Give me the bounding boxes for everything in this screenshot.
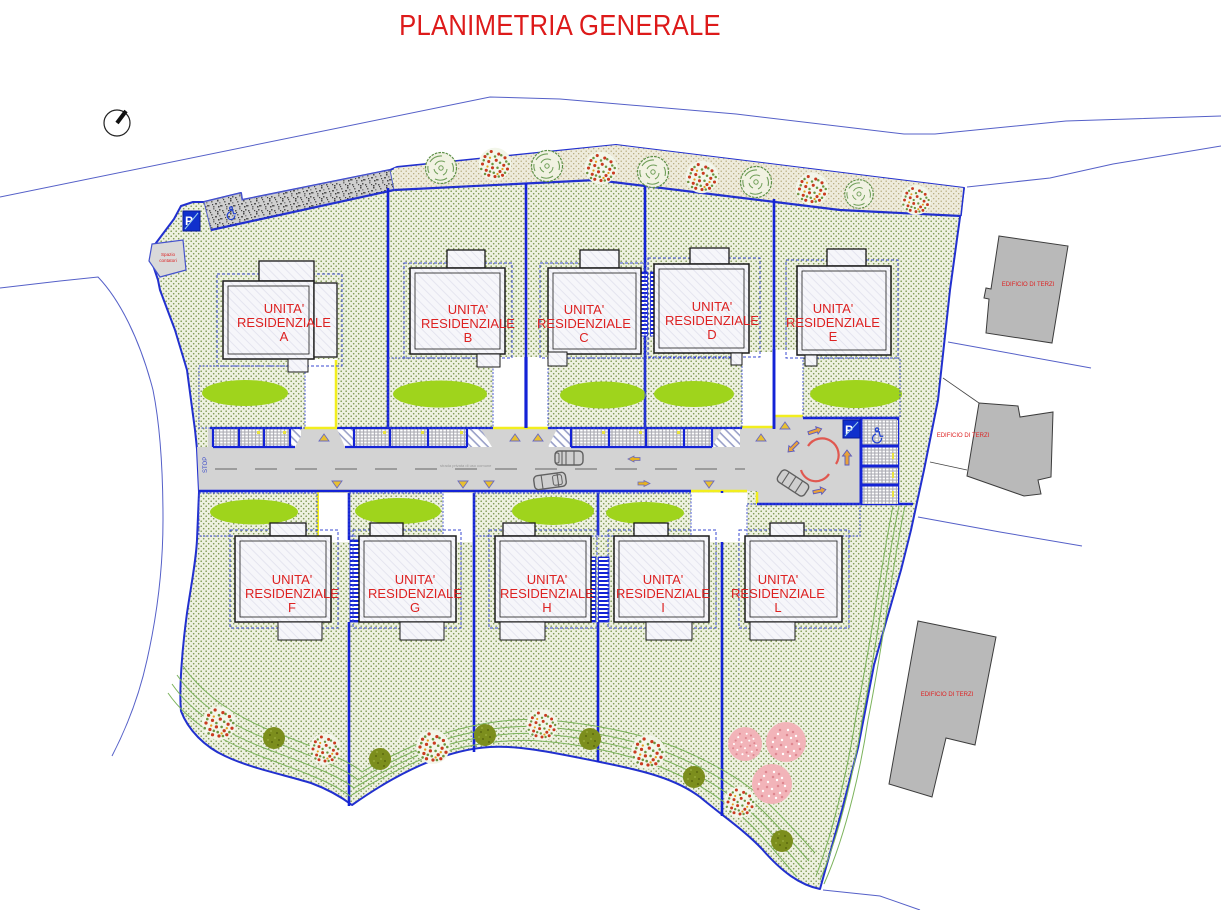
svg-text:UNITA': UNITA' <box>395 572 436 587</box>
svg-text:RESIDENZIALE: RESIDENZIALE <box>665 313 759 328</box>
svg-text:RESIDENZIALE: RESIDENZIALE <box>368 586 462 601</box>
svg-text:RESIDENZIALE: RESIDENZIALE <box>500 586 594 601</box>
svg-text:PLANIMETRIA GENERALE: PLANIMETRIA GENERALE <box>399 9 721 42</box>
svg-text:G: G <box>410 600 420 615</box>
svg-text:D: D <box>707 327 716 342</box>
svg-text:EDIFICIO DI TERZI: EDIFICIO DI TERZI <box>937 433 990 439</box>
svg-text:RESIDENZIALE: RESIDENZIALE <box>237 315 331 330</box>
svg-text:contatori: contatori <box>159 258 177 263</box>
svg-text:UNITA': UNITA' <box>692 299 733 314</box>
svg-text:RESIDENZIALE: RESIDENZIALE <box>245 586 339 601</box>
svg-text:L: L <box>774 600 781 615</box>
svg-text:B: B <box>464 330 473 345</box>
svg-text:EDIFICIO DI TERZI: EDIFICIO DI TERZI <box>1002 282 1055 288</box>
svg-text:UNITA': UNITA' <box>527 572 568 587</box>
svg-text:F: F <box>288 600 296 615</box>
svg-text:RESIDENZIALE: RESIDENZIALE <box>786 315 880 330</box>
svg-text:RESIDENZIALE: RESIDENZIALE <box>731 586 825 601</box>
svg-text:UNITA': UNITA' <box>272 572 313 587</box>
svg-text:EDIFICIO DI TERZI: EDIFICIO DI TERZI <box>921 692 974 698</box>
svg-text:STOP: STOP <box>203 457 209 473</box>
svg-text:A: A <box>280 329 289 344</box>
svg-text:RESIDENZIALE: RESIDENZIALE <box>421 316 515 331</box>
svg-text:UNITA': UNITA' <box>643 572 684 587</box>
svg-text:RESIDENZIALE: RESIDENZIALE <box>537 316 631 331</box>
svg-text:UNITA': UNITA' <box>813 301 854 316</box>
svg-text:E: E <box>829 329 838 344</box>
svg-text:UNITA': UNITA' <box>758 572 799 587</box>
svg-text:Spazio: Spazio <box>161 252 175 257</box>
svg-text:RESIDENZIALE: RESIDENZIALE <box>616 586 710 601</box>
svg-text:C: C <box>579 330 588 345</box>
svg-text:I: I <box>661 600 665 615</box>
svg-text:UNITA': UNITA' <box>264 301 305 316</box>
svg-text:UNITA': UNITA' <box>448 302 489 317</box>
svg-text:UNITA': UNITA' <box>564 302 605 317</box>
svg-text:strada privata di uso comune: strada privata di uso comune <box>440 463 492 468</box>
svg-text:H: H <box>542 600 551 615</box>
